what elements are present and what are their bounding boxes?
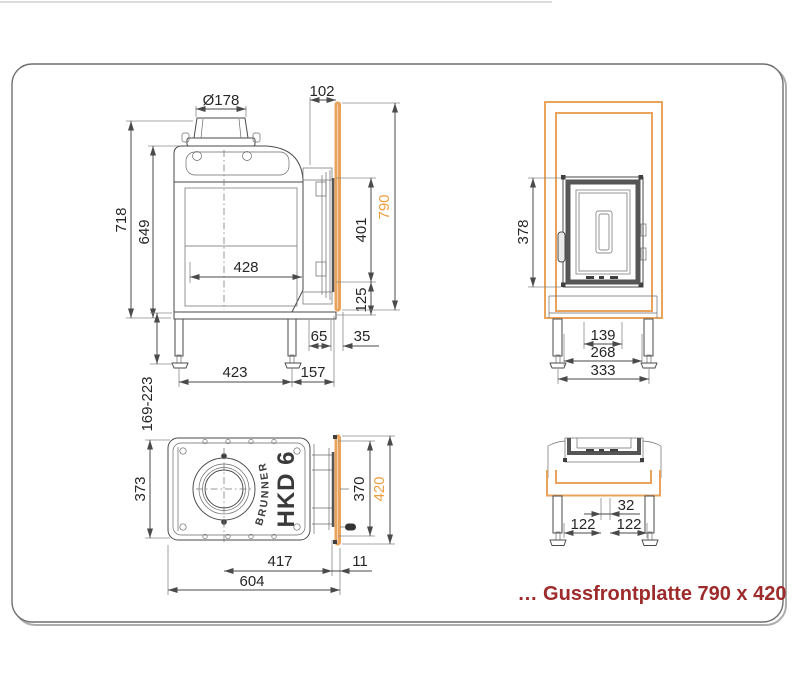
dim-32: 32 [618, 497, 635, 514]
dim-401: 401 [353, 217, 370, 242]
door-handle [558, 232, 565, 262]
dim-417: 417 [267, 553, 292, 570]
drawing-panel [12, 64, 786, 625]
dim-420-front-plate-width: 420 [371, 476, 388, 501]
dim-378: 378 [515, 219, 532, 244]
dim-35: 35 [354, 328, 371, 345]
dim-157: 157 [300, 364, 325, 381]
dim-leg-height-range: 169-223 [139, 376, 156, 431]
dim-11: 11 [352, 553, 368, 570]
dim-790-front-plate-height: 790 [376, 194, 393, 219]
dim-65: 65 [311, 328, 328, 345]
top-view-branding: BRUNNER HKD 6 [253, 450, 300, 527]
dim-718: 718 [113, 207, 130, 232]
note-gussfrontplatte: … Gussfrontplatte 790 x 420 [518, 583, 787, 605]
dim-428: 428 [233, 259, 258, 276]
drawing-canvas: Ø178 102 718 649 428 401 [0, 0, 800, 700]
dim-122-left: 122 [570, 516, 595, 533]
dim-122-right: 122 [616, 516, 641, 533]
dim-604: 604 [239, 573, 264, 590]
model-text: HKD 6 [273, 450, 300, 527]
dim-268: 268 [590, 344, 615, 361]
dim-139: 139 [590, 327, 615, 344]
dim-102: 102 [309, 83, 334, 100]
technical-drawing-page: Ø178 102 718 649 428 401 [0, 0, 800, 700]
dim-423: 423 [222, 364, 247, 381]
dim-333: 333 [590, 362, 615, 379]
door-handle-knob [345, 524, 356, 531]
dim-370: 370 [351, 476, 368, 501]
dim-125: 125 [353, 287, 370, 312]
dim-373: 373 [132, 476, 149, 501]
dim-flue-diameter: Ø178 [203, 92, 240, 109]
dim-649: 649 [136, 219, 153, 244]
